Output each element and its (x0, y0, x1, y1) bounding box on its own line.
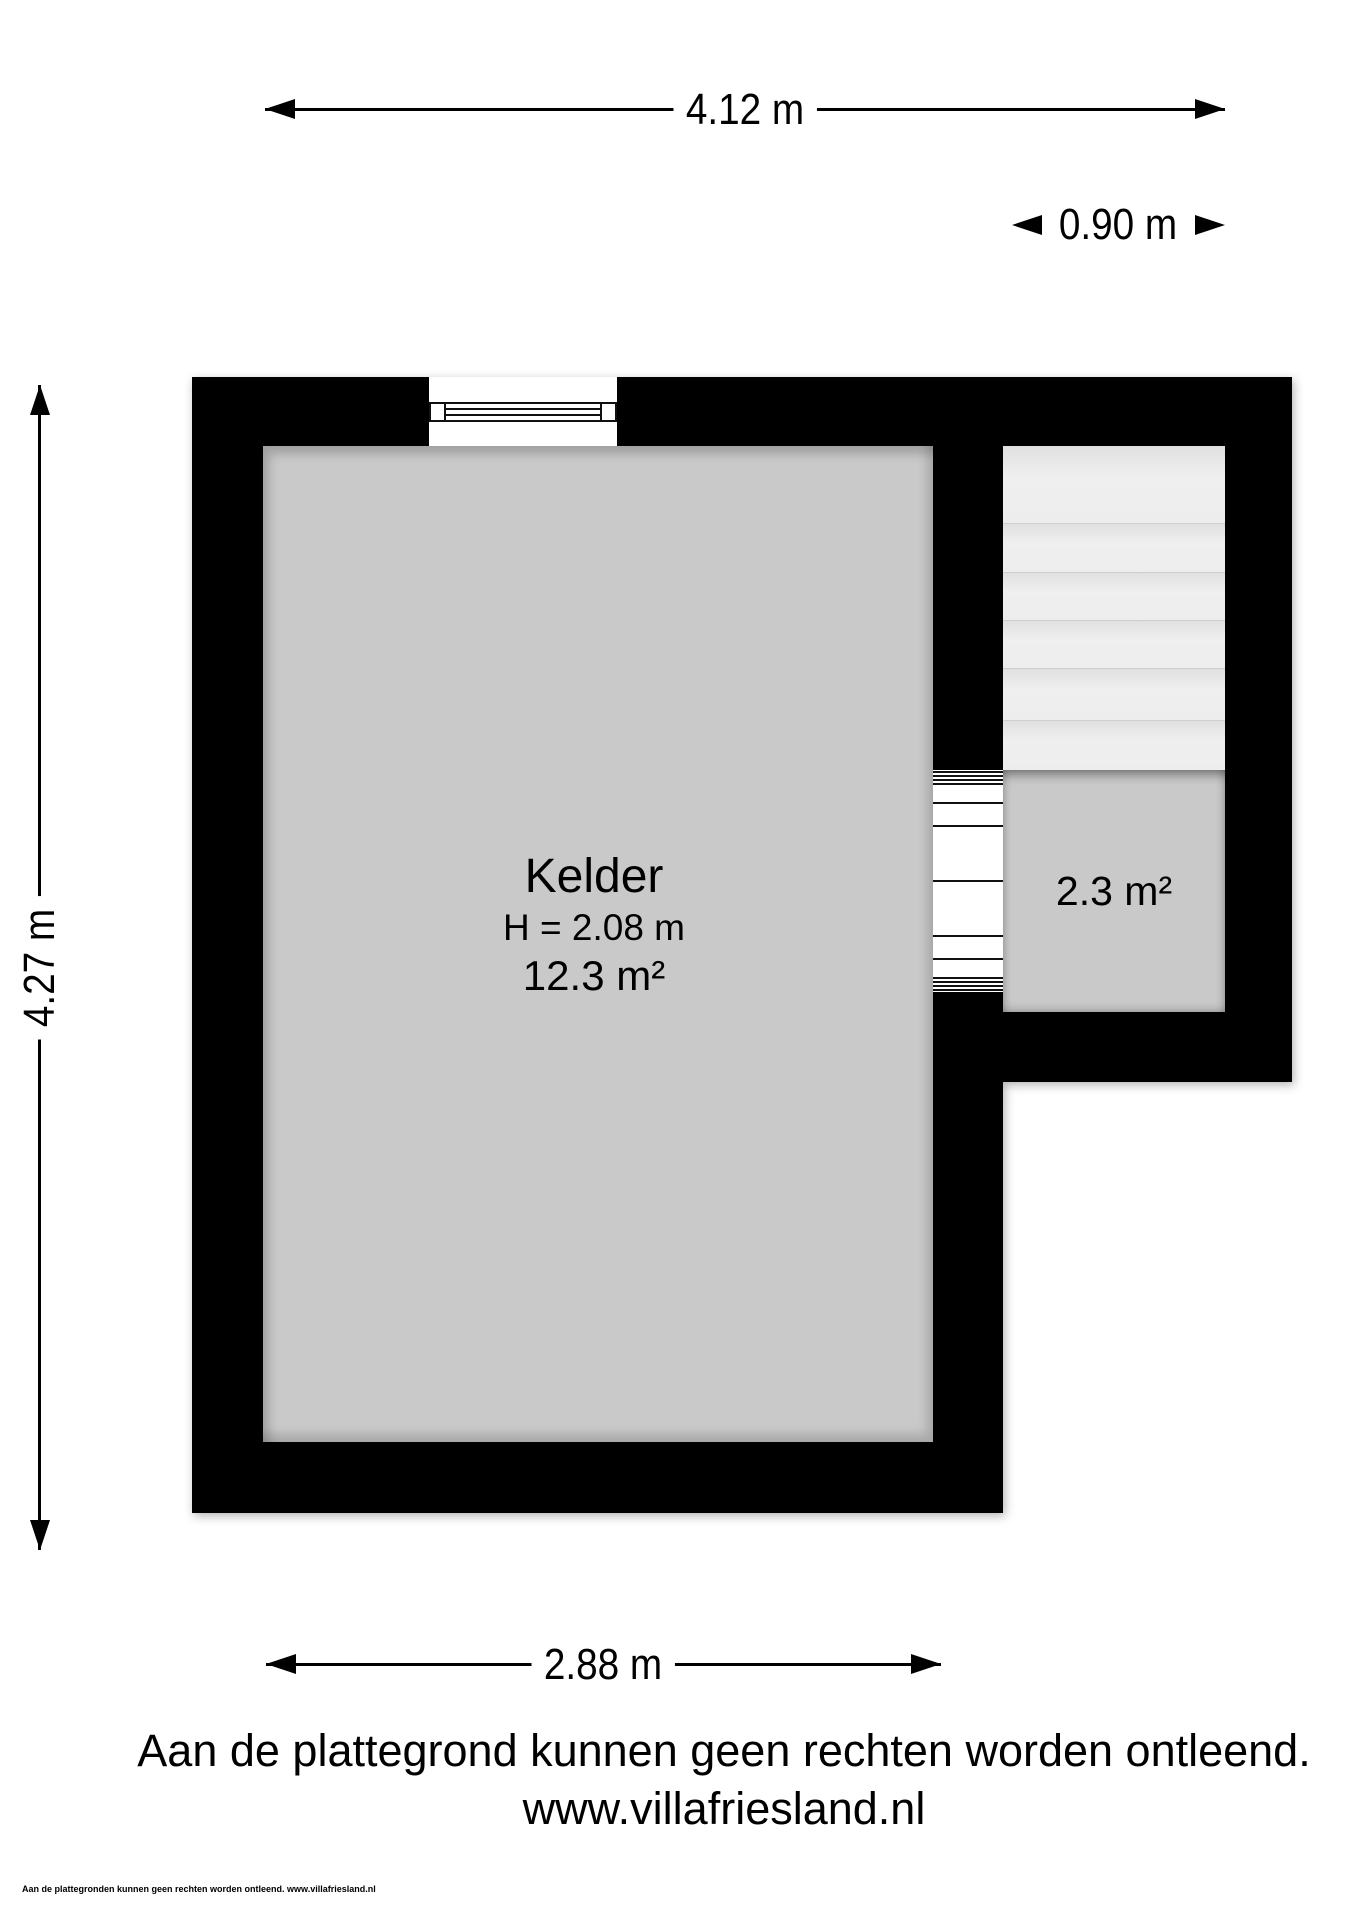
wall-bottom (192, 1442, 1003, 1513)
room-label-stairwell: 2.3 m² (1056, 868, 1172, 915)
stair-tread (1003, 620, 1225, 668)
window-endcap-right (600, 402, 617, 422)
ladder-rung (933, 775, 1003, 777)
footer: Aan de plattegrond kunnen geen rechten w… (90, 1722, 1358, 1838)
ladder-rung (933, 989, 1003, 991)
ladder-rung (933, 958, 1003, 960)
arrow-right-icon (1195, 99, 1225, 119)
ladder-rung (933, 771, 1003, 773)
dimension-label: 4.27 m (15, 896, 65, 1039)
ladder-rung (933, 825, 1003, 827)
arrow-down-icon (30, 1520, 50, 1550)
staircase (1003, 446, 1225, 770)
arrow-left-icon (1012, 215, 1042, 235)
wall-right-outer (1225, 446, 1292, 1082)
arrow-right-icon (1195, 215, 1225, 235)
floorplan-page: Kelder H = 2.08 m 12.3 m² 2.3 m² 4.12 m … (0, 0, 1358, 1920)
room-height: H = 2.08 m (503, 904, 685, 951)
ladder-rung (933, 985, 1003, 987)
arrow-right-icon (911, 1654, 941, 1674)
website-text: www.villafriesland.nl (90, 1780, 1358, 1838)
room-name: Kelder (503, 850, 685, 904)
stair-tread (1003, 523, 1225, 572)
ladder-rung (933, 802, 1003, 804)
arrow-left-icon (266, 1654, 296, 1674)
ladder-rung (933, 977, 1003, 979)
ladder-symbol (933, 770, 1003, 992)
wall-right-bottom (1003, 1012, 1292, 1082)
window-pane-line (445, 414, 601, 416)
dimension-label: 2.88 m (531, 1640, 674, 1690)
wall-left (192, 377, 263, 1513)
wall-top-right-segment (617, 377, 1292, 446)
fine-print-text: Aan de plattegronden kunnen geen rechten… (22, 1884, 376, 1894)
ladder-rung (933, 935, 1003, 937)
window-endcap-left (429, 402, 446, 422)
stair-tread (1003, 668, 1225, 720)
window-symbol (429, 377, 617, 446)
ladder-rung (933, 880, 1003, 882)
ladder-rung (933, 783, 1003, 785)
room-area: 12.3 m² (503, 951, 685, 1001)
ladder-rung (933, 981, 1003, 983)
window-pane-line (445, 408, 601, 410)
stair-tread (1003, 720, 1225, 770)
wall-middle-lower (933, 992, 1003, 1442)
room-label-kelder: Kelder H = 2.08 m 12.3 m² (503, 850, 685, 1001)
arrow-up-icon (30, 385, 50, 415)
dimension-label: 4.12 m (673, 85, 816, 135)
stair-tread (1003, 572, 1225, 620)
dimension-label: 0.90 m (1059, 200, 1177, 250)
arrow-left-icon (265, 99, 295, 119)
window-frame (429, 402, 617, 422)
stair-tread (1003, 446, 1225, 523)
ladder-rung (933, 779, 1003, 781)
disclaimer-text: Aan de plattegrond kunnen geen rechten w… (90, 1722, 1358, 1780)
room-area: 2.3 m² (1056, 868, 1172, 914)
wall-middle-upper (933, 446, 1003, 770)
